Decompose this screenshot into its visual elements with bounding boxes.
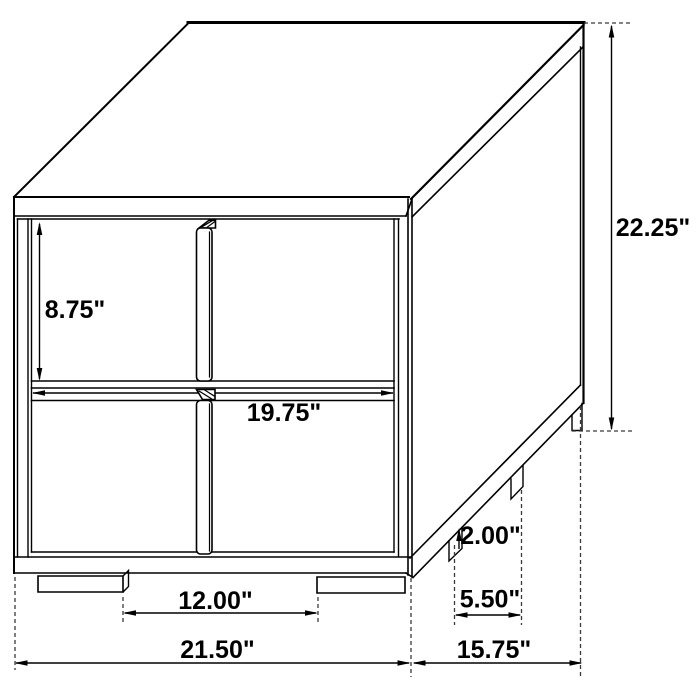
label-overall-width: 21.50" (180, 636, 254, 664)
label-overall-depth: 15.75" (457, 636, 531, 664)
dimension-drawer-height: 8.75" (37, 222, 106, 381)
dimension-foot-height: 2.00" (456, 522, 521, 550)
dimension-diagram-svg: 19.75" 8.75" 22.25" (0, 0, 700, 700)
cabinet-top (14, 23, 584, 218)
extension-lines (15, 23, 634, 677)
dimension-side-feet-gap: 5.50" (455, 586, 522, 618)
cabinet-front (14, 197, 413, 578)
dimension-front-feet-gap: 12.00" (123, 587, 318, 616)
front-right-foot (317, 577, 405, 593)
drawer-handle-upper (197, 220, 216, 381)
label-overall-height: 22.25" (616, 214, 690, 242)
label-drawer-height: 8.75" (45, 296, 106, 324)
dimension-overall-depth: 15.75" (413, 636, 583, 666)
drawer-handle-lower (197, 390, 216, 555)
diagram-canvas: 19.75" 8.75" 22.25" (0, 0, 700, 700)
cabinet-side (410, 25, 584, 578)
dimension-overall-height: 22.25" (609, 25, 691, 431)
label-front-feet-gap: 12.00" (178, 587, 252, 615)
label-drawer-width: 19.75" (247, 399, 321, 427)
label-foot-height: 2.00" (460, 522, 521, 550)
dimension-overall-width: 21.50" (15, 636, 411, 666)
label-side-feet-gap: 5.50" (460, 586, 521, 614)
